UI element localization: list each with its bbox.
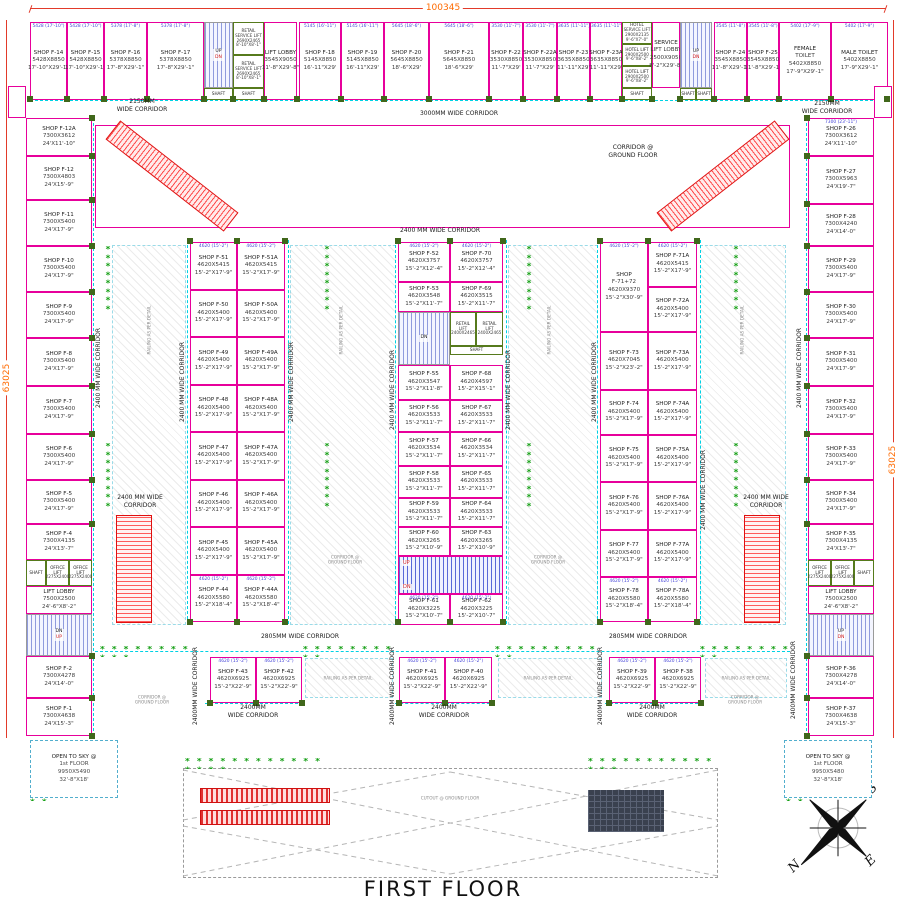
planter-strip: * * * * * * * * * * * * * * * * — [185, 758, 333, 769]
width-dim-label: 3545 (11'-8") — [748, 24, 778, 29]
column — [89, 197, 95, 203]
column — [804, 153, 810, 159]
width-dim-label: 4620 (15'-2") — [601, 244, 647, 249]
width-dim-label: 5402 (17'-9") — [832, 24, 887, 29]
entrance-note: CUTOUT @ GROUND FLOOR — [421, 795, 480, 800]
column — [187, 619, 193, 625]
width-dim-label: 5428 (17'-10") — [68, 24, 103, 29]
room-stair-bottom-left: DNUP — [26, 614, 92, 656]
column — [694, 619, 700, 625]
room-shop-f-4: SHOP F-47300X413524'X13'-7" — [26, 524, 92, 560]
entrance-escalator-2 — [200, 810, 330, 825]
room-shop-f-23: 3635 (11'-11")SHOP F-233635X885011'-11"X… — [557, 22, 590, 100]
column — [27, 96, 33, 102]
column — [299, 700, 305, 706]
room-shop-f-66: SHOP F-664620X353415'-2"X11'-7" — [450, 432, 503, 466]
column — [89, 335, 95, 341]
room-shop-f-61: 4620 (15'-2")SHOP F-614620X322515'-2"X10… — [398, 594, 450, 625]
room-shop-f-21: 5645 (18'-6")SHOP F-215645X885018'-6"X29… — [429, 22, 489, 100]
room-shop-f-74: SHOP F-744620X540015'-2"X17'-9" — [600, 390, 648, 435]
room-lift-lobby-right: LIFT LOBBY7500X250024'-6"X8'-2" — [808, 586, 874, 614]
room-open-to-sky-left: OPEN TO SKY @1st FLOOR9950X549032'-8"X18… — [30, 740, 118, 798]
room-shaft-top-left-2: SHAFT — [233, 88, 264, 100]
corridor-at-ground-floor: CORRIDOR @GROUND FLOOR — [608, 144, 657, 160]
planter-strip: * * * * * * * * — [103, 246, 113, 328]
room-shop-f-51: 4620 (15'-2")SHOP F-514620X541515'-2"X17… — [190, 242, 237, 290]
room-retail-service-lift-2: RETAILSERVICE LIFT2690X24658'-10"X8'-1" — [233, 55, 264, 88]
width-dim-label: 4620 (15'-2") — [238, 577, 284, 582]
room-shop-f-45: SHOP F-454620X540015'-2"X17'-9" — [190, 527, 237, 575]
column — [230, 96, 236, 102]
room-shop-f-17: 5378 (17'-8")SHOP F-175378X885017'-8"X29… — [147, 22, 204, 100]
corridor-label-top: 3000MM WIDE CORRIDOR — [420, 110, 498, 118]
corridor-label-v: 2400MM WIDE CORRIDOR — [790, 641, 798, 719]
room-shop-f-52: 4620 (15'-2")SHOP F-524620X375715'-2"X12… — [398, 242, 450, 282]
railing-note: RAILING AS PER DETAIL — [146, 306, 151, 355]
column — [395, 619, 401, 625]
width-dim-label: 4620 (15'-2") — [451, 596, 502, 601]
corridor-line — [187, 240, 188, 624]
room-shaft-right: SHAFT — [854, 560, 874, 586]
width-dim-label: 7300 (23'-11") — [809, 120, 873, 125]
room-shop-f-7: SHOP F-77300X540024'X17'-9" — [26, 386, 92, 434]
room-retail-service-lift-1: RETAILSERVICE LIFT2690X24658'-10"X8'-1" — [233, 22, 264, 55]
room-shop-f-74a: SHOP F-74A4620X540015'-2"X17'-9" — [648, 390, 697, 435]
room-shop-f-44a: 4620 (15'-2")SHOP F-44A4620X558015'-2"X1… — [237, 575, 285, 622]
column — [804, 477, 810, 483]
room-shop-f-2: SHOP F-27300X427824'X14'-0" — [26, 656, 92, 698]
escalator-center: UPDN — [398, 556, 503, 594]
column — [804, 695, 810, 701]
width-dim-label: 4620 (15'-2") — [399, 244, 449, 249]
corridor-label-v: 2400 MM WIDE CORRIDOR — [288, 342, 296, 422]
column — [744, 96, 750, 102]
width-dim-label: 4620 (15'-2") — [610, 659, 654, 664]
room-shop-f-35: SHOP F-357300X413524'X13'-7" — [808, 524, 874, 560]
column — [89, 289, 95, 295]
width-dim-label: 5145 (16'-11") — [300, 24, 340, 29]
room-office-lift-1: OFFICE LIFT2275X2400 — [46, 560, 69, 586]
room-shop-f-22: 3530 (11'-7")SHOP F-223530X885011'-7"X29… — [489, 22, 523, 100]
room-shaft-top-left-1: SHAFT — [204, 88, 233, 100]
room-shop-f-29: SHOP F-297300X540024'X17'-9" — [808, 246, 874, 292]
room-retail-lift-1: RETAILLIFT2400X2465 — [450, 312, 476, 346]
corridor-label-mid: 2400 MM WIDE CORRIDOR — [400, 227, 480, 235]
room-shop-f-73: SHOP F-734620X704515'-2"X23'-2" — [600, 332, 648, 390]
column — [89, 653, 95, 659]
column — [804, 431, 810, 437]
column — [395, 238, 401, 244]
room-shop-f-37: SHOP F-377300X463824'X15'-3" — [808, 698, 874, 736]
column — [645, 619, 651, 625]
column — [234, 238, 240, 244]
room-shop-f-78a: 4620 (15'-2")SHOP F-78A4620X558015'-2"X1… — [648, 577, 697, 622]
room-shop-f-67: SHOP F-674620X353315'-2"X11'-7" — [450, 400, 503, 432]
width-dim-label: 4620 (15'-2") — [601, 579, 647, 584]
room-shop-f-19: 5145 (16'-11")SHOP F-195145X885016'-11"X… — [341, 22, 384, 100]
room-shop-f-14: 5428 (17'-10")SHOP F-145428X885017'-10"X… — [30, 22, 67, 100]
planter-strip: * * * * * * * * — [524, 246, 534, 328]
corridor-line — [806, 118, 807, 736]
room-female-toilet: 5402 (17'-9")FEMALETOILET5402X885017'-9"… — [779, 22, 831, 100]
corridor-label-v: 2400 MM WIDE CORRIDOR — [95, 328, 103, 408]
room-shop-f-58: SHOP F-584620X353315'-2"X11'-7" — [398, 466, 450, 498]
corridor-label-bottom-3: 2400MMWIDE CORRIDOR — [627, 704, 678, 720]
room-shop-f-73a: SHOP F-73A4620X540015'-2"X17'-9" — [648, 332, 697, 390]
room-hotel-lift-1: HOTEL LIFT2900X25009'-6"X8'-2" — [622, 44, 652, 66]
width-dim-label: 4620 (15'-2") — [446, 659, 491, 664]
corridor-line — [395, 240, 396, 624]
width-dim-label: 5378 (17'-8") — [148, 24, 203, 29]
width-dim-label: 4620 (15'-2") — [191, 244, 236, 249]
corridor-line — [597, 240, 598, 624]
corridor-line — [288, 240, 289, 624]
column — [489, 700, 495, 706]
column — [282, 238, 288, 244]
planter-strip: * * * * * * * * — [731, 443, 741, 523]
room-lift-lobby-top-left: LIFT LOBBY3545X905011'-8"X29'-8" — [264, 22, 297, 100]
room-open-to-sky-right: OPEN TO SKY @1st FLOOR9950X548032'-8"X18… — [784, 740, 872, 798]
room-shop-f-77: SHOP F-774620X540015'-2"X17'-9" — [600, 530, 648, 577]
corridor-label-2150-left: 2150MMWIDE CORRIDOR — [117, 98, 168, 114]
room-hotel-lift-2: HOTEL LIFT2900X25009'-6"X8'-2" — [622, 66, 652, 88]
planter-strip: * * * * * * * * * * * — [100, 646, 200, 657]
corridor-label-v: 2400 MM WIDE CORRIDOR — [796, 328, 804, 408]
room-shop-f-42: 4620 (15'-2")SHOP F-424620X692515'-2"X22… — [256, 657, 302, 703]
column — [338, 96, 344, 102]
room-shop-f-51a: 4620 (15'-2")SHOP F-51A4620X541515'-2"X1… — [237, 242, 285, 290]
room-office-lift-2: OFFICE LIFT2275X2400 — [69, 560, 92, 586]
corridor-label-v: 2400 MM WIDE CORRIDOR — [389, 350, 397, 430]
room-shop-f-36: SHOP F-367300X427824'X14'-0" — [808, 656, 874, 698]
column — [520, 96, 526, 102]
room-shop-f-12a: SHOP F-12A7300X361224'X11'-10" — [26, 118, 92, 156]
column — [89, 153, 95, 159]
room-shop-f-47: SHOP F-474620X540015'-2"X17'-9" — [190, 432, 237, 480]
room-shop-f-46a: SHOP F-46A4620X540015'-2"X17'-9" — [237, 480, 285, 527]
column — [711, 96, 717, 102]
room-shop-f-65: SHOP F-654620X353315'-2"X11'-7" — [450, 466, 503, 498]
column — [587, 96, 593, 102]
room-shop-f-26: 7300 (23'-11")SHOP F-267300X361224'X11'-… — [808, 118, 874, 156]
room-stair-center: DN — [398, 312, 450, 365]
column — [381, 96, 387, 102]
room-shop-f-20: 5645 (18'-6")SHOP F-205645X885018'-6"X29… — [384, 22, 429, 100]
room-shop-f-59: SHOP F-594620X353315'-2"X11'-7" — [398, 498, 450, 527]
column — [500, 619, 506, 625]
railing-note: RAILING AS PER DETAIL — [324, 675, 373, 680]
width-dim-label: 4620 (15'-2") — [238, 244, 284, 249]
room-shop-f-25: 3545 (11'-8")SHOP F-253545X885011'-8"X29… — [747, 22, 779, 100]
room-shop-f-71a: 4620 (15'-2")SHOP F-71A4620X541515'-2"X1… — [648, 242, 697, 287]
planter-strip: * * * * * * * * — [322, 246, 332, 328]
column — [89, 431, 95, 437]
left-dimension-value: 63025 — [2, 361, 12, 396]
column — [89, 477, 95, 483]
room-shop-f-18: 5145 (16'-11")SHOP F-185145X885016'-11"X… — [299, 22, 341, 100]
room-shop-f-12: SHOP F-127300X480324'X15'-9" — [26, 156, 92, 200]
room-shop-f-60: SHOP F-604620X326515'-2"X10'-9" — [398, 527, 450, 556]
column — [698, 700, 704, 706]
column — [804, 289, 810, 295]
width-dim-label: 4620 (15'-2") — [191, 577, 236, 582]
column — [282, 619, 288, 625]
page-title: FIRST FLOOR — [364, 877, 522, 900]
width-dim-label: 4620 (15'-2") — [257, 659, 301, 664]
room-shop-f-63: SHOP F-634620X326515'-2"X10'-9" — [450, 527, 503, 556]
room-shop-f-55: SHOP F-554620X354715'-2"X11'-8" — [398, 365, 450, 400]
column — [804, 521, 810, 527]
column — [804, 653, 810, 659]
corridor-label-2805-left: 2805MM WIDE CORRIDOR — [261, 633, 339, 641]
room-shop-f-38: 4620 (15'-2")SHOP F-384620X692515'-2"X22… — [655, 657, 701, 703]
column — [89, 115, 95, 121]
room-shop-f-28: SHOP F-287300X424024'X14'-0" — [808, 204, 874, 246]
width-dim-label: 4620 (15'-2") — [649, 579, 696, 584]
room-lift-lobby-left: LIFT LOBBY7500X250024'-6"X8'-2" — [26, 586, 92, 614]
void-note: CORRIDOR @GROUND FLOOR — [531, 555, 565, 566]
right-dimension-line — [893, 20, 894, 738]
corridor-label-v: 2400MM WIDE CORRIDOR — [192, 647, 200, 725]
column — [447, 238, 453, 244]
room-shop-f-8: SHOP F-87300X540024'X17'-9" — [26, 338, 92, 386]
room-shop-f-44: 4620 (15'-2")SHOP F-444620X558015'-2"X18… — [190, 575, 237, 622]
entrance-structure — [588, 790, 664, 832]
corridor-label-bottom-1: 2400MMWIDE CORRIDOR — [228, 704, 279, 720]
column — [426, 96, 432, 102]
column — [89, 383, 95, 389]
column — [694, 238, 700, 244]
column — [804, 243, 810, 249]
corridor-label-v: 2400 MM WIDE CORRIDOR — [179, 342, 187, 422]
column — [884, 96, 890, 102]
entrance-escalator-1 — [200, 788, 330, 803]
column — [804, 201, 810, 207]
width-dim-label: 3530 (11'-7") — [490, 24, 522, 29]
planter-strip: * * * * * * * * * * — [303, 646, 395, 657]
corridor-label-esc-left: 2400 MM WIDECORRIDOR — [117, 494, 163, 510]
room-shop-f-57: SHOP F-574620X353415'-2"X11'-7" — [398, 432, 450, 466]
room-shop-f-53: SHOP F-534620X354815'-2"X11'-7" — [398, 282, 450, 312]
room-shop-f-39: 4620 (15'-2")SHOP F-394620X692515'-2"X22… — [609, 657, 655, 703]
column — [554, 96, 560, 102]
column — [261, 96, 267, 102]
width-dim-label: 4620 (15'-2") — [399, 596, 449, 601]
column — [187, 238, 193, 244]
column — [597, 619, 603, 625]
corridor-label-v: 2400MM WIDE CORRIDOR — [389, 647, 397, 725]
room-shop-f-32: SHOP F-327300X540024'X17'-9" — [808, 386, 874, 434]
right-dimension-value: 63025 — [888, 443, 898, 478]
column — [500, 238, 506, 244]
room-shop-f-62: 4620 (15'-2")SHOP F-624620X322515'-2"X10… — [450, 594, 503, 625]
corridor-label-esc-right: 2400 MM WIDECORRIDOR — [743, 494, 789, 510]
railing-note: RAILING AS PER DETAIL — [338, 306, 343, 355]
room-shop-f-24: 3545 (11'-8")SHOP F-243545X885011'-8"X29… — [714, 22, 747, 100]
room-shop-f-9: SHOP F-97300X540024'X17'-9" — [26, 292, 92, 338]
railing-note: RAILING AS PER DETAIL — [524, 675, 573, 680]
room-shop-f-40: 4620 (15'-2")SHOP F-404620X692515'-2"X22… — [445, 657, 492, 703]
room-office-lift-4: OFFICE LIFT2275X2400 — [831, 560, 854, 586]
corridor-line — [506, 240, 507, 624]
width-dim-label: 4620 (15'-2") — [656, 659, 700, 664]
column — [649, 96, 655, 102]
column — [619, 96, 625, 102]
width-dim-label: 4620 (15'-2") — [649, 244, 696, 249]
room-shop-f-75: SHOP F-754620X540015'-2"X17'-9" — [600, 435, 648, 482]
void-railing-area — [290, 245, 396, 625]
room-shop-f-11: SHOP F-117300X540024'X17'-9" — [26, 200, 92, 246]
room-stair-bottom-right: UPDN — [808, 614, 874, 656]
column — [804, 733, 810, 739]
room-shop-f-5: SHOP F-57300X540024'X17'-9" — [26, 480, 92, 524]
room-shop-f-64: SHOP F-644620X353315'-2"X11'-7" — [450, 498, 503, 527]
planter-strip: * * * * * * * * — [524, 443, 534, 523]
planter-strip: * * * * * * * * * * * * * * — [588, 758, 718, 769]
room-shaft-left: SHAFT — [26, 560, 46, 586]
room-shaft-top-right-0: SHAFT — [622, 88, 652, 100]
width-dim-label: 3530 (11'-7") — [524, 24, 556, 29]
room-shop-f-31: SHOP F-317300X540024'X17'-9" — [808, 338, 874, 386]
room-shop-f-23a: 3635 (11'-11")SHOP F-23A3635X885011'-11"… — [590, 22, 622, 100]
width-dim-label: 3635 (11'-11") — [558, 24, 589, 29]
column — [89, 733, 95, 739]
corridor-label-v: 2400 MM WIDE CORRIDOR — [700, 450, 708, 530]
top-dimension-value: 100345 — [423, 3, 463, 13]
room-shop-f-41: 4620 (15'-2")SHOP F-414620X692515'-2"X22… — [399, 657, 445, 703]
room-shop-f-1: SHOP F-17300X463824'X15'-3" — [26, 698, 92, 736]
room-shop-f-75a: SHOP F-75A4620X540015'-2"X17'-9" — [648, 435, 697, 482]
room-shop-f-15: 5428 (17'-10")SHOP F-155428X885017'-10"X… — [67, 22, 104, 100]
corridor-label-v: 2400 MM WIDE CORRIDOR — [591, 342, 599, 422]
corridor-label-v: 2400 MM WIDE CORRIDOR — [505, 350, 513, 430]
room-shop-f-30: SHOP F-307300X540024'X17'-9" — [808, 292, 874, 338]
column — [804, 115, 810, 121]
room-shop-f-48a: SHOP F-48A4620X540015'-2"X17'-9" — [237, 385, 285, 432]
column — [486, 96, 492, 102]
room-shop-f-47a: SHOP F-47A4620X540015'-2"X17'-9" — [237, 432, 285, 480]
column — [447, 619, 453, 625]
column — [64, 96, 70, 102]
room-shop-f-76a: SHOP F-76A4620X540015'-2"X17'-9" — [648, 482, 697, 530]
room-shop-f-71-72: 4620 (15'-2")SHOPF-71+724620X937015'-2"X… — [600, 242, 648, 332]
room-shop-f-34: SHOP F-347300X540024'X17'-9" — [808, 480, 874, 524]
room-entry-right — [874, 86, 892, 118]
width-dim-label: 4620 (15'-2") — [451, 244, 502, 249]
escalator-right — [744, 515, 780, 623]
planter-strip: * * * * * * * * — [103, 443, 113, 523]
room-stair-top-left: UPDN — [204, 22, 233, 88]
room-shop-f-50a: SHOP F-50A4620X540015'-2"X17'-9" — [237, 290, 285, 337]
width-dim-label: 5428 (17'-10") — [31, 24, 66, 29]
column — [677, 96, 683, 102]
column — [294, 96, 300, 102]
floor-plan-canvas: 100345 63025 63025 N — [0, 0, 900, 900]
void-note: CORRIDOR @GROUND FLOOR — [135, 695, 169, 706]
room-shop-f-45a: SHOP F-45A4620X540015'-2"X17'-9" — [237, 527, 285, 575]
room-shop-f-76: SHOP F-764620X540015'-2"X17'-9" — [600, 482, 648, 530]
planter-strip: * * * * * * * * * * — [700, 646, 790, 657]
corridor-line — [700, 240, 701, 624]
column — [804, 335, 810, 341]
width-dim-label: 3635 (11'-11") — [591, 24, 621, 29]
planter-strip: * * * * * * * * * * * — [495, 646, 600, 657]
room-shop-f-78: 4620 (15'-2")SHOP F-784620X558015'-2"X18… — [600, 577, 648, 622]
room-shop-f-33: SHOP F-337300X540024'X17'-9" — [808, 434, 874, 480]
escalator-left — [116, 515, 152, 623]
room-stair-top-right: UPDN — [680, 22, 712, 88]
room-shop-f-72a: SHOP F-72A4620X540015'-2"X17'-9" — [648, 287, 697, 332]
room-shop-f-6: SHOP F-67300X540024'X17'-9" — [26, 434, 92, 480]
column — [234, 619, 240, 625]
room-shop-f-49a: SHOP F-49A4620X540015'-2"X17'-9" — [237, 337, 285, 385]
room-shop-f-49: SHOP F-494620X540015'-2"X17'-9" — [190, 337, 237, 385]
room-shop-f-77a: SHOP F-77A4620X540015'-2"X17'-9" — [648, 530, 697, 577]
void-note: CORRIDOR @GROUND FLOOR — [728, 695, 762, 706]
column — [89, 695, 95, 701]
railing-note: RAILING AS PER DETAIL — [739, 306, 744, 355]
room-shop-f-48: SHOP F-484620X540015'-2"X17'-9" — [190, 385, 237, 432]
room-office-lift-3: OFFICE LIFT2275X2400 — [808, 560, 831, 586]
width-dim-label: 4620 (15'-2") — [211, 659, 255, 664]
column — [101, 96, 107, 102]
compass-n: N — [784, 857, 804, 877]
width-dim-label: 5645 (18'-6") — [430, 24, 488, 29]
room-shop-f-27: SHOP F-277300X596324'X19'-7" — [808, 156, 874, 204]
room-shaft-top-right-2: SHAFT — [696, 88, 712, 100]
width-dim-label: 5378 (17'-8") — [105, 24, 146, 29]
room-shop-f-10: SHOP F-107300X540024'X17'-9" — [26, 246, 92, 292]
column — [207, 700, 213, 706]
width-dim-label: 5645 (18'-6") — [385, 24, 428, 29]
column — [597, 238, 603, 244]
room-shop-f-68: SHOP F-684620X459715'-2"X15'-1" — [450, 365, 503, 400]
width-dim-label: 4620 (15'-2") — [400, 659, 444, 664]
column — [645, 238, 651, 244]
room-entry-left — [8, 86, 26, 118]
railing-note: RAILING AS PER DETAIL — [546, 306, 551, 355]
room-shop-f-43: 4620 (15'-2")SHOP F-434620X692515'-2"X22… — [210, 657, 256, 703]
railing-note: RAILING AS PER DETAIL — [722, 675, 771, 680]
room-shop-f-46: SHOP F-464620X540015'-2"X17'-9" — [190, 480, 237, 527]
planter-strip: * * * * * * * * — [322, 443, 332, 523]
room-shop-f-50: SHOP F-504620X540015'-2"X17'-9" — [190, 290, 237, 337]
room-hotel-service-lift: HOTELSERVICE LIFT2900X21359'-6"X7'-0" — [622, 22, 652, 44]
corridor-label-v: 2400MM WIDE CORRIDOR — [597, 647, 605, 725]
corridor-label-2150-right: 2150MMWIDE CORRIDOR — [802, 100, 853, 116]
column — [776, 96, 782, 102]
width-dim-label: 3545 (11'-8") — [715, 24, 746, 29]
room-shaft-center: SHAFT — [450, 346, 503, 355]
column — [201, 96, 207, 102]
width-dim-label: 5145 (16'-11") — [342, 24, 383, 29]
void-note: CORRIDOR @GROUND FLOOR — [328, 555, 362, 566]
void-railing-area — [508, 245, 598, 625]
room-shop-f-56: SHOP F-564620X353315'-2"X11'-7" — [398, 400, 450, 432]
column — [89, 243, 95, 249]
room-retail-lift-2: RETAILLIFT2400X2465 — [476, 312, 503, 346]
room-shop-f-69: SHOP F-694620X351515'-2"X11'-7" — [450, 282, 503, 312]
column — [89, 521, 95, 527]
width-dim-label: 5402 (17'-9") — [780, 24, 830, 29]
column — [804, 383, 810, 389]
corridor-label-bottom-2: 2400MMWIDE CORRIDOR — [419, 704, 470, 720]
room-shop-f-22a: 3530 (11'-7")SHOP F-22A3530X885011'-7"X2… — [523, 22, 557, 100]
room-shop-f-70: 4620 (15'-2")SHOP F-704620X375715'-2"X12… — [450, 242, 503, 282]
column — [606, 700, 612, 706]
corridor-label-2805-right: 2805MM WIDE CORRIDOR — [609, 633, 687, 641]
room-service-lift-lobby: SERVICELIFT LOBBY2500X90508'-2"X29'-8" — [652, 22, 680, 88]
